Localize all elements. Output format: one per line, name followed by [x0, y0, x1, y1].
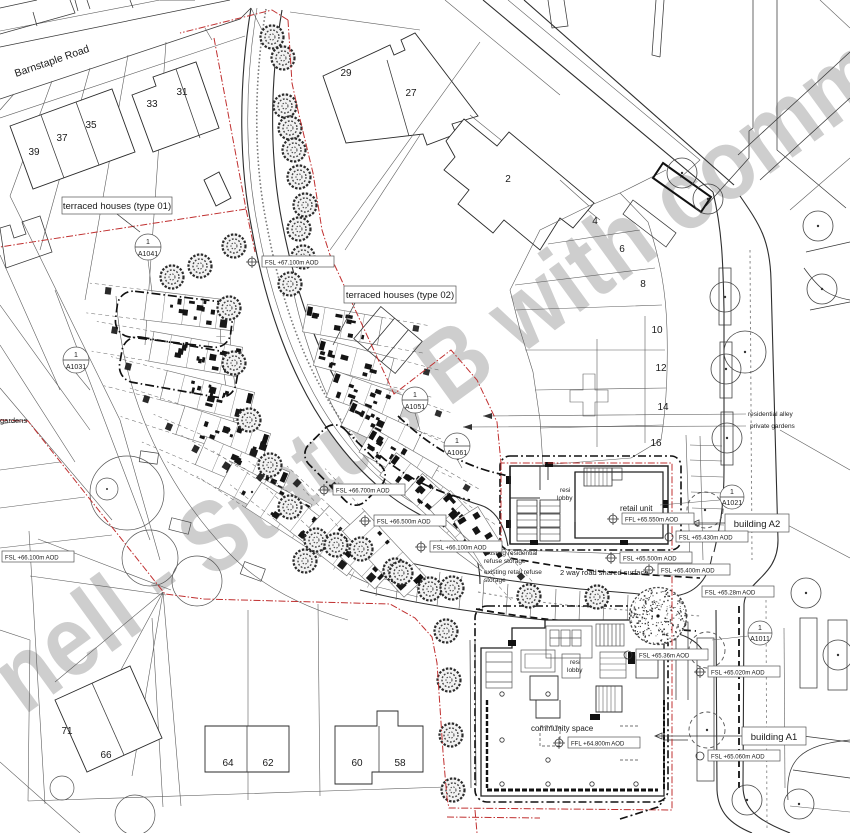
svg-text:35: 35 [85, 120, 97, 131]
svg-text:terraced houses (type 02): terraced houses (type 02) [346, 290, 454, 301]
svg-text:71: 71 [61, 726, 73, 737]
svg-text:1: 1 [74, 352, 78, 359]
svg-text:community space: community space [531, 724, 594, 733]
svg-text:1: 1 [455, 438, 459, 445]
svg-text:lobby: lobby [557, 495, 573, 502]
svg-text:1: 1 [730, 489, 734, 496]
svg-text:FSL +67.100m AOD: FSL +67.100m AOD [265, 261, 319, 267]
svg-text:lobby: lobby [567, 667, 583, 674]
svg-text:private gardens: private gardens [750, 423, 796, 430]
svg-text:FSL +66.100m AOD: FSL +66.100m AOD [5, 556, 59, 562]
svg-text:FSL +65.060m AOD: FSL +65.060m AOD [711, 755, 765, 761]
svg-text:storage: storage [484, 577, 506, 584]
svg-text:16: 16 [650, 438, 662, 449]
svg-text:64: 64 [222, 758, 234, 769]
svg-text:A1031: A1031 [66, 364, 86, 371]
svg-text:residential alley: residential alley [748, 411, 794, 418]
svg-text:60: 60 [351, 758, 363, 769]
svg-text:39: 39 [28, 147, 40, 158]
svg-text:gardens: gardens [0, 416, 27, 425]
svg-text:4: 4 [592, 216, 598, 227]
svg-text:58: 58 [394, 758, 406, 769]
svg-text:14: 14 [657, 402, 669, 413]
svg-text:8: 8 [640, 279, 646, 290]
svg-text:FSL +65.020m AOD: FSL +65.020m AOD [711, 671, 765, 677]
svg-text:27: 27 [405, 88, 417, 99]
svg-text:A1021: A1021 [722, 500, 742, 507]
svg-text:retail unit: retail unit [620, 504, 653, 513]
svg-text:FSL +65.430m AOD: FSL +65.430m AOD [679, 536, 733, 542]
svg-text:A1011: A1011 [750, 636, 770, 643]
svg-text:FSL +65.36m AOD: FSL +65.36m AOD [639, 654, 690, 660]
svg-text:terraced houses (type 01): terraced houses (type 01) [63, 201, 171, 212]
svg-text:FSL +66.500m AOD: FSL +66.500m AOD [377, 520, 431, 526]
svg-text:A1061: A1061 [447, 450, 467, 457]
svg-text:FFL +64.800m AOD: FFL +64.800m AOD [571, 742, 625, 748]
svg-text:existing retail refuse: existing retail refuse [484, 569, 542, 576]
svg-text:2: 2 [505, 174, 511, 185]
svg-text:29: 29 [340, 68, 352, 79]
svg-text:6: 6 [619, 244, 625, 255]
svg-text:66: 66 [100, 750, 112, 761]
svg-text:37: 37 [56, 133, 68, 144]
svg-text:building A1: building A1 [751, 732, 797, 743]
svg-text:A1051: A1051 [405, 404, 425, 411]
svg-text:resi: resi [570, 659, 580, 666]
svg-text:12: 12 [655, 363, 667, 374]
svg-text:1: 1 [413, 392, 417, 399]
svg-text:62: 62 [262, 758, 274, 769]
svg-text:FSL +66.700m AOD: FSL +66.700m AOD [336, 489, 390, 495]
svg-text:31: 31 [176, 87, 188, 98]
svg-text:2 way road shared surface: 2 way road shared surface [560, 568, 648, 577]
svg-text:FSL +66.100m AOD: FSL +66.100m AOD [433, 546, 487, 552]
svg-text:33: 33 [146, 99, 158, 110]
svg-text:1: 1 [146, 239, 150, 246]
svg-text:FFL +65.550m AOD: FFL +65.550m AOD [625, 518, 679, 524]
svg-text:building A2: building A2 [734, 519, 780, 530]
svg-text:FSL +65.28m AOD: FSL +65.28m AOD [705, 591, 756, 597]
svg-text:FSL +65.400m AOD: FSL +65.400m AOD [661, 569, 715, 575]
svg-text:A1041: A1041 [138, 251, 158, 258]
svg-text:FSL +65.500m AOD: FSL +65.500m AOD [623, 557, 677, 563]
svg-text:resi: resi [560, 487, 570, 494]
svg-text:10: 10 [651, 325, 663, 336]
svg-text:1: 1 [758, 625, 762, 632]
svg-text:refuse storage: refuse storage [484, 558, 526, 565]
